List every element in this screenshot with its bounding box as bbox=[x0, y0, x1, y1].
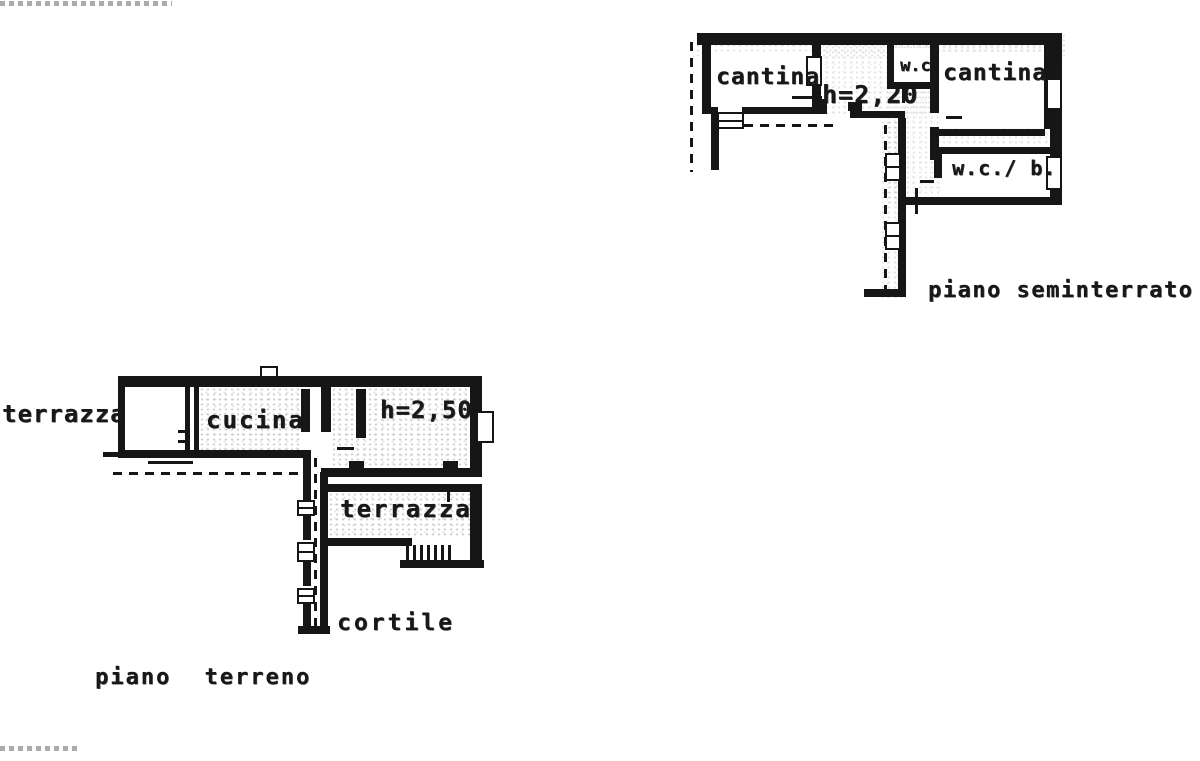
wall-segment bbox=[742, 107, 827, 114]
stair-step bbox=[427, 545, 430, 562]
wall-tick bbox=[915, 188, 918, 214]
wall-segment bbox=[443, 461, 458, 468]
wall-segment bbox=[470, 484, 482, 568]
wall-segment bbox=[887, 82, 933, 89]
wall-segment bbox=[303, 516, 311, 540]
wall-segment bbox=[320, 538, 412, 546]
scan-artifact-bottom-left bbox=[0, 746, 78, 751]
door-swing-tick bbox=[148, 461, 193, 464]
wall-segment bbox=[303, 562, 311, 586]
wall-segment bbox=[697, 33, 1062, 45]
wall-segment bbox=[194, 387, 199, 452]
wall-segment bbox=[848, 102, 862, 111]
wall-segment bbox=[303, 450, 311, 500]
stair-step bbox=[448, 545, 451, 562]
wall-segment bbox=[711, 113, 719, 170]
wall-segment bbox=[118, 376, 482, 387]
door-symbol bbox=[885, 222, 901, 250]
door-symbol bbox=[716, 112, 744, 129]
wall-segment bbox=[298, 626, 330, 634]
room-label-wc-bath: w.c./ b. bbox=[952, 158, 1056, 178]
door-symbol bbox=[297, 588, 315, 604]
wall-segment bbox=[887, 45, 894, 87]
wall-segment bbox=[118, 450, 194, 458]
floorplan-sheet: cantina h=2,20 w.c. cantina w.c./ bbox=[0, 0, 1200, 761]
stair-step bbox=[413, 545, 416, 562]
wall-segment bbox=[864, 289, 906, 297]
dashed-boundary bbox=[884, 125, 887, 290]
window-symbol bbox=[476, 411, 494, 443]
wall-segment bbox=[320, 484, 482, 492]
wall-tick bbox=[178, 440, 187, 443]
room-label-cucina: cucina bbox=[206, 408, 305, 432]
stair-step bbox=[434, 545, 437, 562]
dashed-boundary bbox=[690, 42, 693, 172]
wall-segment bbox=[301, 389, 310, 432]
door-swing-tick bbox=[920, 180, 934, 183]
height-label-terreno: h=2,50 bbox=[380, 398, 473, 422]
wall-segment bbox=[702, 45, 711, 113]
wall-segment bbox=[930, 45, 939, 113]
door-swing-tick bbox=[946, 116, 962, 119]
wall-segment bbox=[103, 452, 119, 457]
stair-step bbox=[420, 545, 423, 562]
wall-segment bbox=[349, 461, 364, 468]
stair-step bbox=[441, 545, 444, 562]
scan-artifact-top-left bbox=[0, 1, 172, 6]
wall-segment bbox=[938, 129, 1045, 136]
arrow-line bbox=[792, 96, 822, 99]
dashed-boundary bbox=[314, 458, 317, 630]
wall-segment bbox=[356, 389, 366, 438]
door-swing-tick bbox=[337, 447, 354, 450]
wall-segment bbox=[934, 147, 942, 178]
door-symbol bbox=[297, 500, 315, 516]
room-label-cantina-left: cantina bbox=[716, 66, 820, 89]
dashed-boundary bbox=[113, 472, 309, 475]
wall-tick bbox=[178, 430, 187, 433]
dashed-boundary bbox=[744, 124, 840, 127]
door-symbol bbox=[297, 542, 315, 562]
door-symbol bbox=[885, 153, 901, 181]
wall-segment bbox=[902, 197, 1058, 205]
wall-segment bbox=[938, 147, 1058, 154]
wall-segment bbox=[185, 450, 309, 458]
floor-caption-seminterrato: piano seminterrato bbox=[928, 280, 1193, 302]
floor-caption-terreno: piano terreno bbox=[95, 667, 311, 689]
room-label-terrazza-left: terrazza bbox=[2, 402, 126, 426]
room-label-cantina-right: cantina bbox=[943, 62, 1047, 85]
wall-segment bbox=[321, 468, 482, 477]
wall-segment bbox=[321, 387, 331, 432]
chimney-symbol bbox=[260, 366, 278, 378]
wall-tick bbox=[902, 89, 905, 103]
window-symbol bbox=[1046, 78, 1062, 110]
wall-segment bbox=[850, 111, 905, 118]
stair-step bbox=[406, 545, 409, 562]
room-label-cortile: cortile bbox=[337, 612, 455, 635]
wall-segment bbox=[898, 118, 906, 296]
wall-segment bbox=[320, 472, 328, 632]
room-label-terrazza-inner: terrazza bbox=[340, 497, 472, 521]
